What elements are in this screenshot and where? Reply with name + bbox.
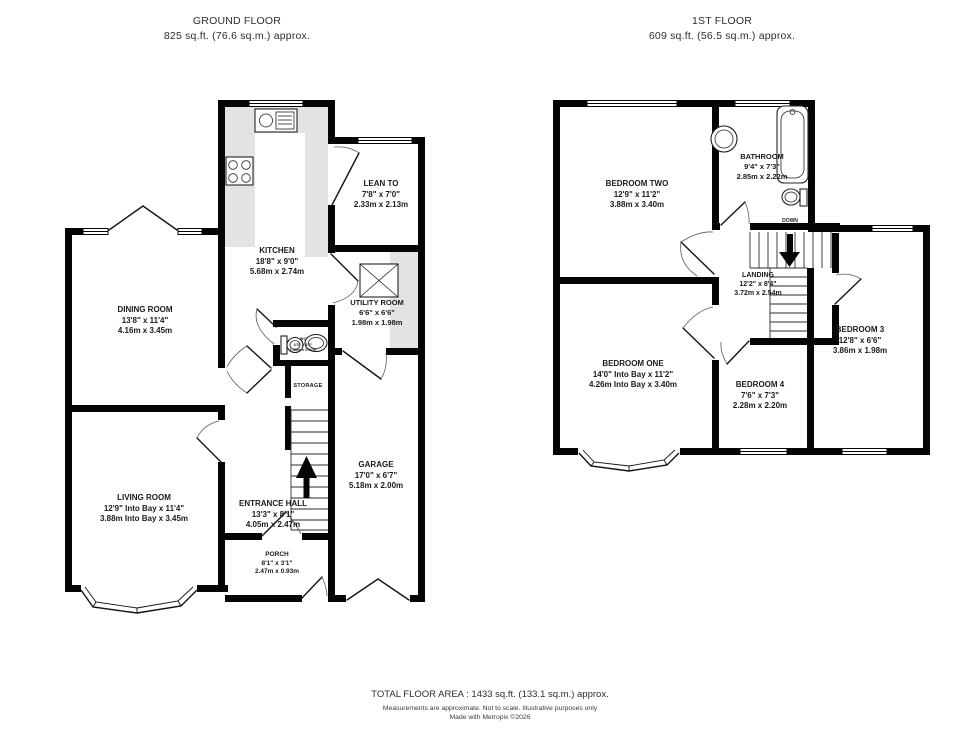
door xyxy=(721,341,749,364)
room-label-bedroom-two: BEDROOM TWO 12'9" x 11'2" 3.88m x 3.40m xyxy=(606,179,669,211)
floor-title: 1ST FLOOR xyxy=(649,14,795,29)
room-name: BEDROOM ONE xyxy=(589,359,677,370)
appliance-icon xyxy=(360,264,398,297)
bay-window xyxy=(81,587,197,613)
room-size-imperial: 14'0" Into Bay x 11'2" xyxy=(589,370,677,381)
window xyxy=(178,229,202,235)
room-size-metric: 3.88m Into Bay x 3.45m xyxy=(100,514,188,525)
toilet-icon xyxy=(782,189,807,206)
room-label-entrance-hall: ENTRANCE HALL 13'3" x 8'1" 4.05m x 2.47m xyxy=(239,499,307,531)
room-size-imperial: 12'9" Into Bay x 11'4" xyxy=(100,504,188,515)
door xyxy=(681,232,714,276)
kitchen-sink-icon xyxy=(255,109,297,132)
room-name: PORCH xyxy=(255,551,299,560)
room-size-metric: 2.28m x 2.20m xyxy=(733,401,787,412)
room-name: ENTRANCE HALL xyxy=(239,499,307,510)
floor-area: 609 sq.ft. (56.5 sq.m.) approx. xyxy=(649,29,795,44)
room-name: BEDROOM 4 xyxy=(733,380,787,391)
room-name: UTILITY ROOM xyxy=(350,298,404,308)
door xyxy=(683,307,714,358)
double-door xyxy=(347,579,409,600)
room-size-metric: 5.18m x 2.00m xyxy=(349,481,403,492)
window xyxy=(842,449,887,455)
room-size-metric: 2.33m x 2.13m xyxy=(354,200,408,211)
room-size-imperial: 12'8" x 6'6" xyxy=(833,336,887,347)
floor-title: GROUND FLOOR xyxy=(164,14,310,29)
floor-area: 825 sq.ft. (76.6 sq.m.) approx. xyxy=(164,29,310,44)
room-name: LIVING ROOM xyxy=(100,493,188,504)
window xyxy=(83,229,108,235)
door xyxy=(227,346,271,393)
room-size-imperial: 13'3" x 8'1" xyxy=(239,510,307,521)
window xyxy=(735,101,790,107)
room-name: LANDING xyxy=(734,271,781,280)
room-name: KITCHEN xyxy=(250,246,304,257)
french-doors xyxy=(109,206,177,230)
storage-label: STORAGE xyxy=(293,383,322,390)
room-size-metric: 1.30m x 0.97m xyxy=(289,347,316,353)
door xyxy=(343,351,386,379)
room-name: STORAGE xyxy=(293,383,322,390)
window xyxy=(587,101,677,107)
room-label-utility-room: UTILITY ROOM 6'6" x 6'6" 1.98m x 1.98m xyxy=(350,298,404,328)
room-label-landing: LANDING 12'2" x 8'4" 3.72m x 2.54m xyxy=(734,271,781,299)
room-size-metric: 4.16m x 3.45m xyxy=(117,326,172,337)
room-size-metric: 2.47m x 0.93m xyxy=(255,568,299,577)
room-size-metric: 4.05m x 2.47m xyxy=(239,520,307,531)
door xyxy=(302,577,327,598)
room-name: BEDROOM 3 xyxy=(833,325,887,336)
floorplan-page: GROUND FLOOR 825 sq.ft. (76.6 sq.m.) app… xyxy=(0,0,980,751)
room-size-imperial: 18'8" x 9'0" xyxy=(250,257,304,268)
room-size-imperial: 7'6" x 7'3" xyxy=(733,391,787,402)
room-name: DINING ROOM xyxy=(117,305,172,316)
room-label-lean-to: LEAN TO 7'8" x 7'0" 2.33m x 2.13m xyxy=(354,179,408,211)
total-floor-area: TOTAL FLOOR AREA : 1433 sq.ft. (133.1 sq… xyxy=(371,689,608,700)
door xyxy=(721,202,749,225)
room-name: BEDROOM TWO xyxy=(606,179,669,190)
window xyxy=(740,449,787,455)
room-size-metric: 1.98m x 1.98m xyxy=(350,318,404,328)
room-size-imperial: 9'4" x 7'3" xyxy=(737,162,788,172)
room-label-garage: GARAGE 17'0" x 6'7" 5.18m x 2.00m xyxy=(349,460,403,492)
room-name: GARAGE xyxy=(349,460,403,471)
room-size-metric: 4.26m Into Bay x 3.40m xyxy=(589,380,677,391)
room-size-metric: 5.68m x 2.74m xyxy=(250,267,304,278)
made-with-text: Made with Metropix ©2026 xyxy=(450,713,531,722)
hob-icon xyxy=(226,157,253,185)
room-size-metric: 3.88m x 3.40m xyxy=(606,200,669,211)
room-size-imperial: 6'6" x 6'6" xyxy=(350,308,404,318)
disclaimer-text: Measurements are approximate. Not to sca… xyxy=(383,704,597,713)
room-name: BATHROOM xyxy=(737,152,788,162)
room-label-bedroom-3: BEDROOM 3 12'8" x 6'6" 3.86m x 1.98m xyxy=(833,325,887,357)
bay-window xyxy=(579,450,679,471)
door xyxy=(197,421,221,462)
room-label-kitchen: KITCHEN 18'8" x 9'0" 5.68m x 2.74m xyxy=(250,246,304,278)
door xyxy=(331,254,358,303)
window xyxy=(249,101,303,107)
basin-icon xyxy=(711,126,737,152)
room-size-imperial: 17'0" x 6'7" xyxy=(349,471,403,482)
room-size-imperial: 7'8" x 7'0" xyxy=(354,190,408,201)
room-size-metric: 3.72m x 2.54m xyxy=(734,289,781,298)
room-label-bedroom-4: BEDROOM 4 7'6" x 7'3" 2.28m x 2.20m xyxy=(733,380,787,412)
room-size-metric: 2.85m x 2.22m xyxy=(737,172,788,182)
ground-floor-title: GROUND FLOOR 825 sq.ft. (76.6 sq.m.) app… xyxy=(164,14,310,44)
room-name: LEAN TO xyxy=(354,179,408,190)
down-label: DOWN xyxy=(782,218,798,225)
ground-floor-doors xyxy=(109,147,409,600)
room-label-porch: PORCH 8'1" x 3'1" 2.47m x 0.93m xyxy=(255,551,299,577)
room-size-imperial: 13'8" x 11'4" xyxy=(117,316,172,327)
room-label-wc: WC 4'3" x 3'2" 1.30m x 0.97m xyxy=(289,336,316,353)
floorplan-drawing xyxy=(0,0,980,751)
first-floor-title: 1ST FLOOR 609 sq.ft. (56.5 sq.m.) approx… xyxy=(649,14,795,44)
room-size-imperial: 12'9" x 11'2" xyxy=(606,190,669,201)
room-label-bedroom-one: BEDROOM ONE 14'0" Into Bay x 11'2" 4.26m… xyxy=(589,359,677,391)
room-label-bathroom: BATHROOM 9'4" x 7'3" 2.85m x 2.22m xyxy=(737,152,788,182)
ground-floor-plan xyxy=(65,100,425,613)
room-label-living-room: LIVING ROOM 12'9" Into Bay x 11'4" 3.88m… xyxy=(100,493,188,525)
room-size-imperial: 12'2" x 8'4" xyxy=(734,280,781,289)
stairs-direction: DOWN xyxy=(782,218,798,225)
door xyxy=(835,274,861,304)
room-label-dining-room: DINING ROOM 13'8" x 11'4" 4.16m x 3.45m xyxy=(117,305,172,337)
room-size-metric: 3.86m x 1.98m xyxy=(833,346,887,357)
room-size-imperial: 8'1" x 3'1" xyxy=(255,560,299,569)
window xyxy=(872,226,913,232)
window xyxy=(358,138,412,144)
